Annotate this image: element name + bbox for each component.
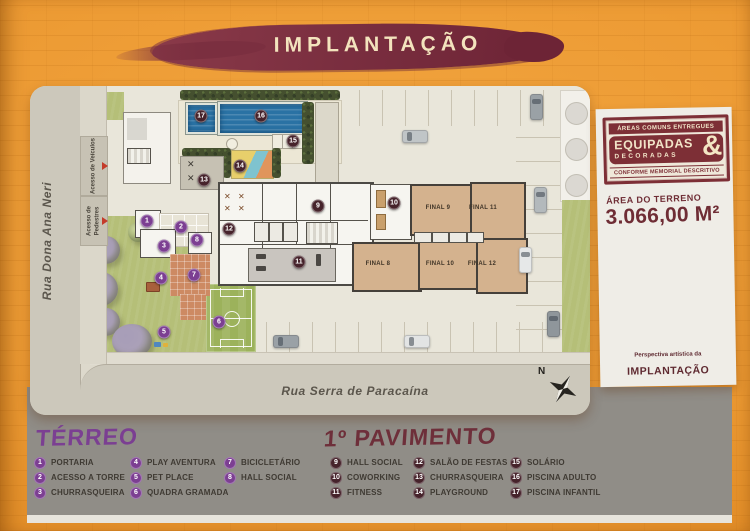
- legend-item-number: 10: [330, 472, 342, 484]
- legend-item-label: COWORKING: [347, 473, 400, 482]
- stamp-bottom-text: CONFORME MEMORIAL DESCRITIVO: [610, 164, 724, 178]
- legend-item-label: PORTARIA: [51, 458, 94, 467]
- parking-stalls-top: [336, 90, 546, 126]
- legend-item: 9HALL SOCIAL: [330, 455, 413, 470]
- legend-item: 14PLAYGROUND: [413, 485, 510, 500]
- legend-item-label: FITNESS: [347, 488, 382, 497]
- plan-marker-11: 11: [293, 256, 306, 269]
- legend-item-label: PLAYGROUND: [430, 488, 488, 497]
- car: [530, 94, 543, 120]
- pet-toy-icon: [154, 342, 161, 347]
- plan-marker-9: 9: [312, 200, 325, 213]
- legend-item-number: 6: [130, 487, 142, 499]
- stairs: [306, 222, 338, 244]
- legend-item: 13CHURRASQUEIRA: [413, 470, 510, 485]
- legend-item: 8HALL SOCIAL: [224, 470, 334, 485]
- car: [273, 335, 299, 348]
- hedge-right: [302, 102, 314, 164]
- plan-marker-12: 12: [223, 223, 236, 236]
- party-table-icon: ✕: [224, 192, 231, 201]
- compass-north-label: N: [538, 366, 545, 377]
- legend-pavimento: 9HALL SOCIAL10COWORKING11FITNESS12SALÃO …: [330, 455, 630, 500]
- legend-item-number: 8: [224, 472, 236, 484]
- stamp-mid: EQUIPADAS DECORADAS &: [609, 133, 724, 164]
- legend-item: 12SALÃO DE FESTAS: [413, 455, 510, 470]
- plan-marker-5: 5: [158, 326, 171, 339]
- legend-item: 7BICICLETÁRIO: [224, 455, 334, 470]
- access-label: Acesso de Veículos: [90, 137, 98, 195]
- legend-column: 9HALL SOCIAL10COWORKING11FITNESS: [330, 455, 413, 500]
- car: [402, 130, 428, 143]
- legend-item: 6QUADRA GRAMADA: [130, 485, 224, 500]
- legend-item: 4PLAY AVENTURA: [130, 455, 224, 470]
- legend-item-number: 3: [34, 487, 46, 499]
- access-arrow-icon: [102, 162, 108, 170]
- annex-stairs: [127, 148, 151, 164]
- unit-core-cells: [414, 232, 484, 243]
- perspective-note: Perspectiva artística da IMPLANTAÇÃO: [600, 342, 737, 380]
- legend-item-number: 12: [413, 457, 425, 469]
- pet-toy-icon: [163, 343, 168, 347]
- legend-item: 5PET PLACE: [130, 470, 224, 485]
- access-chip: Acesso de Pedestres: [80, 196, 108, 246]
- legend-item-label: HALL SOCIAL: [241, 473, 297, 482]
- stamp-ampersand: &: [702, 130, 723, 163]
- plan-marker-17: 17: [195, 110, 208, 123]
- legend-title-terreo: TÉRREO: [35, 423, 139, 452]
- implantation-flyer: IMPLANTAÇÃO: [0, 0, 750, 531]
- terrain-area-value: 3.066,00 M²: [605, 202, 720, 230]
- legend-item-number: 2: [34, 472, 46, 484]
- plan-marker-10: 10: [388, 197, 401, 210]
- legend-column: 15SOLÁRIO16PISCINA ADULTO17PISCINA INFAN…: [510, 455, 630, 500]
- car: [404, 335, 430, 348]
- bbq-table-icon: ✕: [187, 173, 195, 184]
- car: [519, 247, 532, 273]
- legend-item-number: 9: [330, 457, 342, 469]
- legend-item-label: PET PLACE: [147, 473, 194, 482]
- street-name-bottom: Rua Serra de Paracaína: [170, 384, 540, 398]
- plan-marker-1: 1: [141, 215, 154, 228]
- green-strip-right: [562, 200, 590, 354]
- plan-marker-16: 16: [255, 110, 268, 123]
- legend-terreo: 1PORTARIA2ACESSO A TORRE3CHURRASQUEIRA4P…: [34, 455, 334, 500]
- unit-label: FINAL 9: [426, 205, 451, 211]
- elevator-core: [254, 222, 298, 242]
- legend-item-number: 1: [34, 457, 46, 469]
- solarium-deck: [315, 102, 339, 184]
- legend-item-label: SALÃO DE FESTAS: [430, 458, 508, 467]
- party-table-icon: ✕: [238, 192, 245, 201]
- bbq-table-icon: ✕: [187, 159, 195, 170]
- tree-icon: [565, 138, 588, 161]
- annex-roof: [127, 118, 147, 140]
- legend-item-label: HALL SOCIAL: [347, 458, 403, 467]
- street-name-left: Rua Dona Ana Neri: [40, 156, 54, 326]
- legend-item-number: 4: [130, 457, 142, 469]
- unit-label: FINAL 10: [426, 261, 454, 267]
- unit-label: FINAL 8: [366, 261, 391, 267]
- legend-column: 7BICICLETÁRIO8HALL SOCIAL: [224, 455, 334, 500]
- legend-column: 4PLAY AVENTURA5PET PLACE6QUADRA GRAMADA: [130, 455, 224, 500]
- unit-label: FINAL 12: [468, 261, 496, 267]
- hedge-playground-right: [272, 148, 281, 178]
- car: [534, 187, 547, 213]
- tree-icon: [565, 102, 588, 125]
- legend-item-number: 7: [224, 457, 236, 469]
- legend-item: 17PISCINA INFANTIL: [510, 485, 630, 500]
- plan-marker-7: 7: [188, 269, 201, 282]
- access-chip: Acesso de Veículos: [80, 136, 108, 196]
- legend-item-number: 5: [130, 472, 142, 484]
- legend-item-number: 16: [510, 472, 522, 484]
- legend-item-label: BICICLETÁRIO: [241, 458, 300, 467]
- party-table-icon: ✕: [238, 204, 245, 213]
- legend-item: 11FITNESS: [330, 485, 413, 500]
- street-left: [30, 86, 81, 415]
- site-plan: ✕ ✕ ✕ ✕ ✕ ✕: [30, 86, 590, 415]
- perspective-prefix: Perspectiva artística da: [634, 351, 701, 358]
- legend-item-label: ACESSO A TORRE: [51, 473, 125, 482]
- plan-marker-14: 14: [234, 160, 247, 173]
- plan-marker-4: 4: [155, 272, 168, 285]
- legend-item-label: PISCINA ADULTO: [527, 473, 596, 482]
- legend-item-number: 15: [510, 457, 522, 469]
- party-table-icon: ✕: [224, 204, 231, 213]
- plan-marker-8: 8: [191, 234, 204, 247]
- delivered-areas-stamp: ÁREAS COMUNS ENTREGUES EQUIPADAS DECORAD…: [602, 114, 730, 184]
- hedge-playground-left: [223, 148, 231, 178]
- legend-title-pavimento: 1º PAVIMENTO: [323, 422, 498, 452]
- legend-column: 12SALÃO DE FESTAS13CHURRASQUEIRA14PLAYGR…: [413, 455, 510, 500]
- legend-item-label: PISCINA INFANTIL: [527, 488, 601, 497]
- legend-column: 1PORTARIA2ACESSO A TORRE3CHURRASQUEIRA: [34, 455, 130, 500]
- unit-label: FINAL 11: [469, 205, 497, 211]
- compass: N: [536, 366, 582, 408]
- access-label: Acesso de Pedestres: [87, 192, 102, 250]
- terracotta-path: [180, 294, 206, 320]
- legend-item: 1PORTARIA: [34, 455, 130, 470]
- legend-item: 16PISCINA ADULTO: [510, 470, 630, 485]
- plan-marker-6: 6: [213, 316, 226, 329]
- north-arrow-icon: [548, 374, 578, 404]
- legend-item-number: 17: [510, 487, 522, 499]
- legend-item: 15SOLÁRIO: [510, 455, 630, 470]
- access-arrow-icon: [102, 217, 108, 225]
- bottom-divider-strip: [27, 515, 732, 523]
- legend-item-label: QUADRA GRAMADA: [147, 488, 229, 497]
- tree-icon: [565, 174, 588, 197]
- legend-item-label: SOLÁRIO: [527, 458, 565, 467]
- unit-final-8: [352, 242, 422, 292]
- info-card: ÁREAS COMUNS ENTREGUES EQUIPADAS DECORAD…: [596, 107, 737, 387]
- legend-item: 10COWORKING: [330, 470, 413, 485]
- legend-item-label: PLAY AVENTURA: [147, 458, 216, 467]
- legend-item-label: CHURRASQUEIRA: [51, 488, 125, 497]
- plan-marker-15: 15: [287, 135, 300, 148]
- legend-item-number: 14: [413, 487, 425, 499]
- legend-item: 3CHURRASQUEIRA: [34, 485, 130, 500]
- plan-marker-3: 3: [158, 240, 171, 253]
- plan-marker-13: 13: [198, 174, 211, 187]
- legend-item-number: 11: [330, 487, 342, 499]
- hedge-top: [180, 90, 340, 100]
- page-title: IMPLANTAÇÃO: [168, 32, 588, 59]
- car: [547, 311, 560, 337]
- legend-item-label: CHURRASQUEIRA: [430, 473, 504, 482]
- legend-item-number: 13: [413, 472, 425, 484]
- legend-item: 2ACESSO A TORRE: [34, 470, 130, 485]
- perspective-title: IMPLANTAÇÃO: [627, 364, 709, 377]
- plan-marker-2: 2: [175, 221, 188, 234]
